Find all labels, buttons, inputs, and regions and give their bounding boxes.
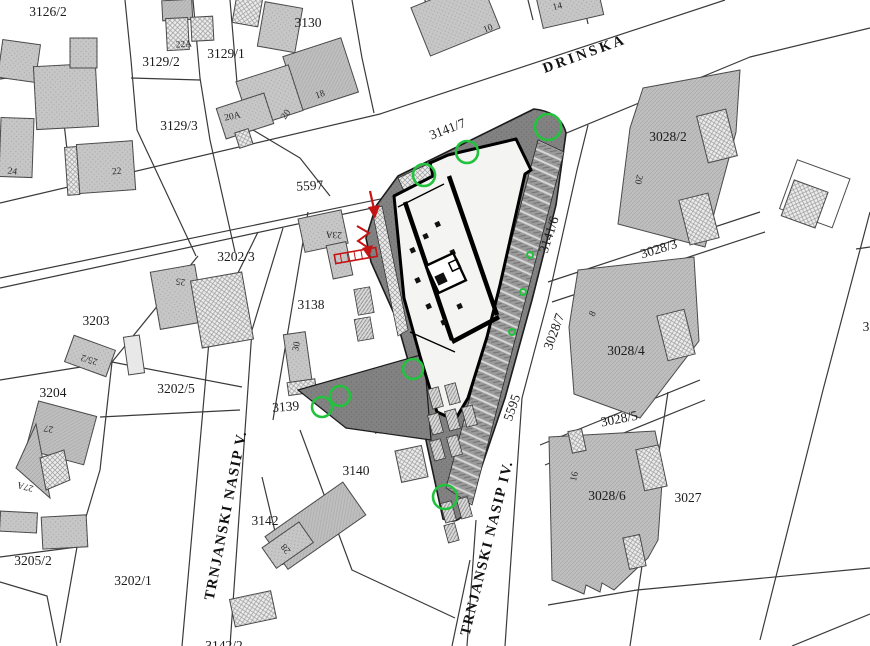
parcel-label-3202-5: 3202/5: [157, 381, 195, 396]
house-number-22a: 22A: [175, 39, 192, 50]
parcel-label-3028-6: 3028/6: [588, 488, 626, 503]
house-number-27: 27: [43, 422, 54, 434]
parcel-label-3028-7: 3028/7: [540, 311, 567, 352]
site-plan: [298, 109, 566, 543]
parcel-label-3028-5: 3028/5: [599, 408, 639, 430]
parcel-label-3203: 3203: [83, 313, 110, 328]
parcel-line: [792, 614, 870, 646]
block-east-boundary: [760, 212, 870, 640]
parcel-line: [0, 582, 57, 646]
map-canvas: 3126/23129/23129/131303129/355973141/730…: [0, 0, 870, 646]
building-30: [283, 332, 311, 383]
parcel-line: [131, 78, 200, 80]
parcel-line: [100, 410, 240, 417]
building: [33, 63, 98, 129]
building-annex: [40, 450, 70, 490]
parcel-label-3129-3: 3129/3: [160, 118, 198, 133]
parcel-label-3129-1: 3129/1: [207, 46, 245, 61]
building-14: [534, 0, 603, 28]
parcel-line: [352, 0, 374, 113]
building: [232, 0, 262, 27]
cadastral-map: 3126/23129/23129/131303129/355973141/730…: [0, 0, 870, 646]
parcel-label-3202-1: 3202/1: [114, 573, 152, 588]
building: [41, 515, 88, 549]
house-number-24: 24: [7, 166, 18, 177]
parcel-label-3139: 3139: [272, 398, 300, 415]
parcel-label-3130: 3130: [295, 15, 322, 30]
parcel-label-3142-2: 3142/2: [205, 638, 243, 646]
parcel-label-3028-3: 3028/3: [639, 236, 679, 261]
parcel-label-3142: 3142: [252, 513, 279, 528]
parcel-line: [856, 247, 870, 249]
parcel-label-3129-2: 3129/2: [142, 54, 180, 69]
road-number-5597: 5597: [296, 177, 324, 193]
parcel-label-3205-2: 3205/2: [14, 553, 52, 568]
parcel-line: [528, 0, 533, 20]
parcel-label-3202-3: 3202/3: [217, 249, 255, 264]
building-22: [76, 141, 135, 194]
building-hatched: [190, 272, 253, 348]
building: [395, 445, 428, 482]
parcel-label-3028-4: 3028/4: [607, 343, 645, 358]
parcel-label-3141-7: 3141/7: [427, 115, 468, 143]
building: [70, 38, 97, 68]
parcel-label-3126-2: 3126/2: [29, 4, 67, 19]
street-name-drinska: DRINSKA: [541, 32, 629, 77]
parcel-label-3028-2: 3028/2: [649, 129, 687, 144]
house-number-23a: 23A: [325, 229, 342, 240]
parcel-label-3140: 3140: [343, 463, 370, 478]
building: [230, 591, 277, 627]
parcel-line: [60, 362, 112, 643]
building-small: [123, 335, 144, 375]
house-number-22: 22: [112, 167, 123, 178]
building-annex: [191, 16, 214, 41]
parcel-label-partial-3: 3: [863, 319, 870, 334]
house-number-25: 25: [175, 275, 186, 286]
parcel-label-3138: 3138: [298, 297, 325, 312]
parcel-label-3027: 3027: [675, 490, 702, 505]
building: [0, 511, 37, 533]
parcel-label-3204: 3204: [40, 385, 67, 400]
street-name-trnjanski-nasip-v: TRNJANSKI NASIP V.: [202, 429, 251, 602]
